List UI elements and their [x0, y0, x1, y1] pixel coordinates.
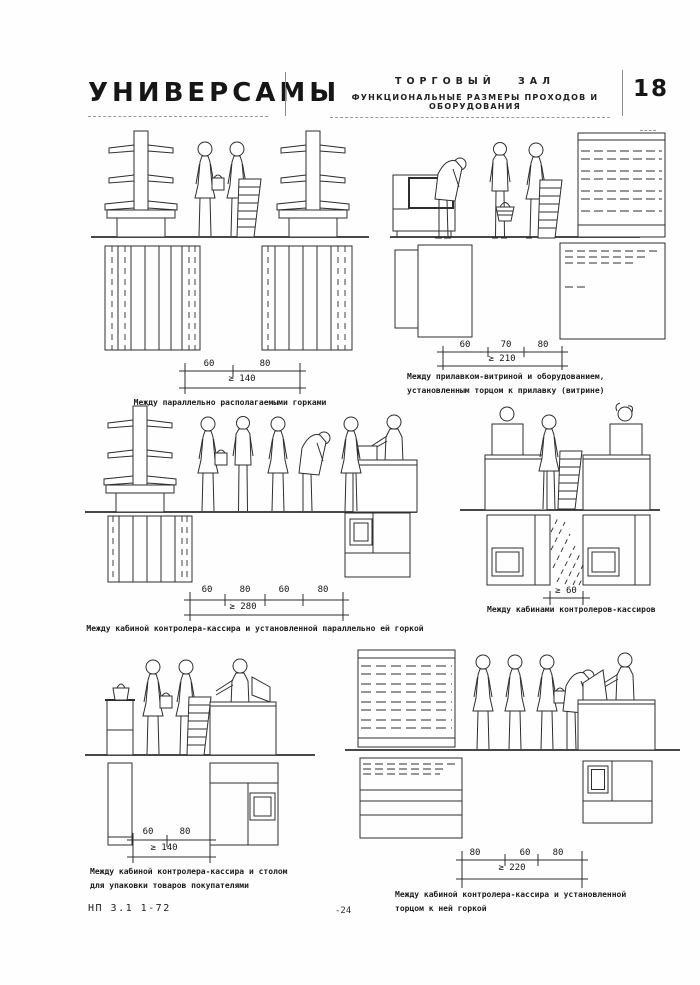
dimension-label: 80 — [318, 585, 329, 595]
header-divider-right — [622, 70, 623, 116]
panel-b-drawing — [385, 125, 685, 413]
sheet-number: 18 — [633, 76, 669, 102]
dimension-label: 60 — [204, 359, 215, 369]
panel-caption: Между кабиной контролера-кассира и устан… — [86, 624, 423, 633]
dimension-label: 80 — [553, 848, 564, 858]
total-dimension-label: ≥ 60 — [555, 586, 577, 596]
document-code: НП 3.1 1-72 — [88, 903, 171, 914]
diagram-panel-gondolas: 60 80 ≥ 140 Между параллельно располагае… — [85, 122, 375, 410]
header-divider-left — [285, 72, 286, 116]
dimension-label: 60 — [460, 340, 471, 350]
page-title: УНИВЕРСАМЫ — [88, 78, 340, 108]
panel-f-drawing — [345, 638, 685, 918]
total-dimension-label: ≥ 140 — [228, 374, 255, 384]
total-dimension-label: ≥ 210 — [488, 354, 515, 364]
diagram-panel-packing-table: 60 80 ≥ 140 Между кабиной контролера-кас… — [80, 645, 350, 903]
diagram-panel-between-booths: ≥ 60 Между кабинами контролеров-кассиров — [455, 398, 685, 638]
dimension-label: 80 — [538, 340, 549, 350]
panel-e-drawing — [80, 645, 350, 903]
page-number: -24 — [335, 906, 351, 916]
panel-a-drawing — [85, 122, 375, 410]
dimension-label: 60 — [143, 827, 154, 837]
dimension-label: 80 — [180, 827, 191, 837]
dimension-label: 60 — [202, 585, 213, 595]
page-subtitle: ФУНКЦИОНАЛЬНЫЕ РАЗМЕРЫ ПРОХОДОВ И ОБОРУД… — [330, 93, 620, 111]
dimension-label: 60 — [520, 848, 531, 858]
dimension-label: 80 — [470, 848, 481, 858]
document-page: УНИВЕРСАМЫ ТОРГОВЫЙ ЗАЛ ФУНКЦИОНАЛЬНЫЕ Р… — [0, 0, 700, 985]
dimension-label: 70 — [501, 340, 512, 350]
diagram-panel-cashier-gondola: 60 80 60 80 ≥ 280 Между кабиной контроле… — [85, 395, 425, 643]
header-rule-left — [88, 116, 268, 117]
panel-d-drawing — [455, 398, 685, 638]
dimension-label: 60 — [279, 585, 290, 595]
dimension-label: 80 — [260, 359, 271, 369]
panel-caption-line2: установленным торцом к прилавку (витрине… — [407, 386, 604, 395]
header-center-block: ТОРГОВЫЙ ЗАЛ ФУНКЦИОНАЛЬНЫЕ РАЗМЕРЫ ПРОХ… — [330, 76, 620, 111]
total-dimension-label: ≥ 140 — [150, 843, 177, 853]
diagram-panel-counter-vitrine: 60 70 80 ≥ 210 Между прилавком-витриной … — [385, 125, 685, 413]
panel-caption: Между кабиной контролера-кассира и устан… — [395, 890, 626, 899]
header-rule-center — [330, 117, 610, 118]
dimension-label: 80 — [240, 585, 251, 595]
panel-caption-line2: торцом к ней горкой — [395, 904, 487, 913]
total-dimension-label: ≥ 280 — [229, 602, 256, 612]
diagram-panel-cashier-endon: 80 60 80 ≥ 220 Между кабиной контролера-… — [345, 638, 685, 918]
panel-caption: Между кабиной контролера-кассира и столо… — [90, 867, 287, 876]
panel-caption: Между прилавком-витриной и оборудованием… — [407, 372, 604, 381]
section-title: ТОРГОВЫЙ ЗАЛ — [330, 76, 620, 87]
total-dimension-label: ≥ 220 — [498, 863, 525, 873]
panel-caption-line2: для упаковки товаров покупателями — [90, 881, 249, 890]
panel-caption: Между кабинами контролеров-кассиров — [487, 605, 656, 614]
